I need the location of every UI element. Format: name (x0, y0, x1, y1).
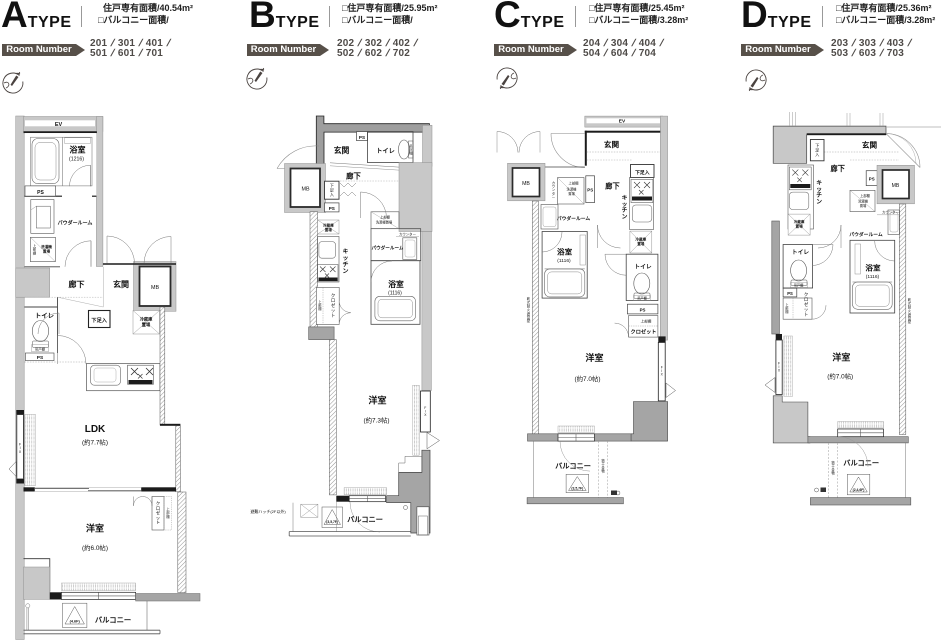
svg-text:廊下: 廊下 (346, 172, 361, 181)
svg-text:LDK: LDK (85, 424, 106, 435)
svg-text:(1116): (1116) (557, 258, 571, 264)
svg-text:(4.6F): (4.6F) (70, 619, 81, 623)
svg-text:浴室: 浴室 (70, 145, 86, 155)
svg-text:置場: 置場 (43, 249, 51, 254)
svg-text:置場: 置場 (860, 203, 867, 208)
svg-text:MB: MB (892, 183, 900, 189)
svg-text:ト: ト (804, 312, 809, 317)
svg-text:洗濯機: 洗濯機 (858, 198, 869, 203)
svg-text:玄関: 玄関 (862, 140, 878, 150)
svg-text:玄関: 玄関 (113, 279, 129, 289)
svg-text:ッ: ッ (816, 187, 822, 193)
svg-text:(約7.0帖): (約7.0帖) (827, 372, 853, 381)
svg-text:下足入: 下足入 (91, 316, 107, 324)
svg-text:ン: ン (816, 198, 822, 205)
svg-text:冷蔵庫: 冷蔵庫 (323, 222, 334, 227)
svg-text:浴室: 浴室 (388, 279, 404, 289)
svg-text:PS: PS (329, 206, 335, 211)
svg-text:浴室: 浴室 (865, 262, 881, 272)
svg-text:PS: PS (869, 177, 875, 182)
svg-text:壁: 壁 (527, 318, 531, 323)
svg-text:(2,4,6F): (2,4,6F) (853, 488, 865, 492)
svg-text:洗濯機置場: 洗濯機置場 (376, 219, 393, 224)
svg-text:ン: ン (342, 268, 348, 275)
svg-text:(1116): (1116) (388, 291, 402, 297)
svg-text:上部棚: 上部棚 (569, 180, 580, 185)
svg-text:PS: PS (37, 190, 44, 196)
svg-text:浴室: 浴室 (557, 246, 573, 256)
svg-text:洋室: 洋室 (368, 394, 386, 405)
svg-text:上部棚: 上部棚 (641, 318, 652, 323)
svg-text:吊戸棚: 吊戸棚 (637, 296, 647, 301)
svg-text:冷蔵庫: 冷蔵庫 (794, 219, 805, 224)
svg-text:上部棚: 上部棚 (380, 214, 391, 219)
svg-text:下足入: 下足入 (635, 169, 650, 176)
svg-text:キ: キ (342, 248, 348, 255)
svg-text:洗濯機: 洗濯機 (41, 244, 52, 249)
svg-text:EV: EV (55, 122, 63, 128)
svg-text:棚: 棚 (409, 151, 412, 156)
svg-text:棚: 棚 (318, 306, 321, 311)
svg-text:トイレ: トイレ (634, 264, 652, 271)
svg-text:EV: EV (619, 119, 626, 125)
svg-text:上部棚: 上部棚 (860, 193, 871, 198)
svg-text:(約7.7帖): (約7.7帖) (82, 438, 108, 447)
svg-text:冷蔵庫: 冷蔵庫 (635, 236, 646, 241)
svg-text:クロゼット: クロゼット (631, 328, 657, 336)
svg-text:ト: ト (156, 520, 160, 525)
svg-text:トイレ: トイレ (376, 148, 395, 155)
svg-text:廊下: 廊下 (831, 164, 845, 173)
svg-text:チ: チ (816, 192, 822, 199)
svg-text:吊戸棚: 吊戸棚 (35, 347, 46, 352)
svg-text:ト: ト (331, 313, 336, 318)
svg-text:置場: 置場 (142, 321, 151, 328)
svg-text:洋室: 洋室 (832, 352, 850, 363)
svg-text:ッ: ッ (622, 202, 628, 208)
svg-text:キ: キ (816, 180, 822, 187)
svg-text:MB: MB (301, 187, 309, 193)
svg-text:パウダールーム: パウダールーム (58, 220, 93, 227)
svg-text:チ: チ (342, 261, 348, 268)
svg-text:ー: ー (552, 196, 556, 200)
svg-text:置場: 置場 (325, 227, 333, 232)
svg-text:MB: MB (522, 181, 530, 187)
svg-text:パウダールーム: パウダールーム (371, 245, 403, 252)
svg-text:棚: 棚 (33, 250, 37, 255)
svg-text:(約6.0帖): (約6.0帖) (82, 543, 108, 552)
svg-text:(約7.3帖): (約7.3帖) (364, 416, 390, 425)
svg-text:置場: 置場 (637, 241, 645, 246)
svg-text:パウダールーム: パウダールーム (557, 215, 591, 222)
svg-text:棚: 棚 (785, 309, 788, 314)
svg-text:棚: 棚 (166, 514, 170, 519)
svg-text:置場: 置場 (796, 223, 804, 228)
svg-text:玄関: 玄関 (334, 145, 350, 155)
svg-text:バルコニー: バルコニー (843, 458, 879, 467)
svg-text:洗濯機: 洗濯機 (567, 186, 578, 191)
svg-text:(3,5,7F): (3,5,7F) (571, 486, 583, 490)
svg-text:キ: キ (622, 195, 628, 202)
svg-text:MB: MB (151, 285, 159, 291)
svg-text:ッ: ッ (342, 256, 348, 262)
svg-text:玄関: 玄関 (604, 139, 620, 149)
svg-text:物: 物 (601, 469, 605, 474)
svg-text:トイレ: トイレ (792, 249, 810, 256)
svg-text:PS: PS (640, 308, 646, 313)
svg-text:チ: チ (622, 207, 628, 214)
svg-text:洋室: 洋室 (86, 523, 104, 534)
svg-text:置場: 置場 (568, 191, 575, 196)
svg-text:PS: PS (359, 135, 365, 140)
svg-text:(1116): (1116) (866, 274, 880, 280)
svg-text:PS: PS (787, 291, 793, 296)
svg-text:バルコニー: バルコニー (347, 515, 383, 524)
svg-text:(約7.0帖): (約7.0帖) (575, 374, 601, 383)
svg-text:廊下: 廊下 (69, 279, 85, 289)
svg-text:吊戸棚: 吊戸棚 (794, 283, 804, 288)
svg-text:ン: ン (622, 213, 628, 220)
svg-text:(1216): (1216) (69, 157, 84, 163)
svg-text:トイレ: トイレ (35, 312, 54, 320)
svg-text:物: 物 (831, 471, 835, 476)
svg-text:パウダールーム: パウダールーム (849, 231, 883, 238)
svg-text:壁: 壁 (908, 319, 912, 324)
svg-text:PS: PS (587, 188, 593, 193)
svg-text:PS: PS (37, 355, 44, 361)
svg-text:バルコニー: バルコニー (95, 616, 131, 625)
svg-text:カウンター: カウンター (399, 231, 417, 236)
svg-text:避難ハッチ(2F以外): 避難ハッチ(2F以外) (250, 508, 286, 514)
svg-text:廊下: 廊下 (605, 182, 619, 191)
svg-text:洋室: 洋室 (585, 352, 603, 363)
